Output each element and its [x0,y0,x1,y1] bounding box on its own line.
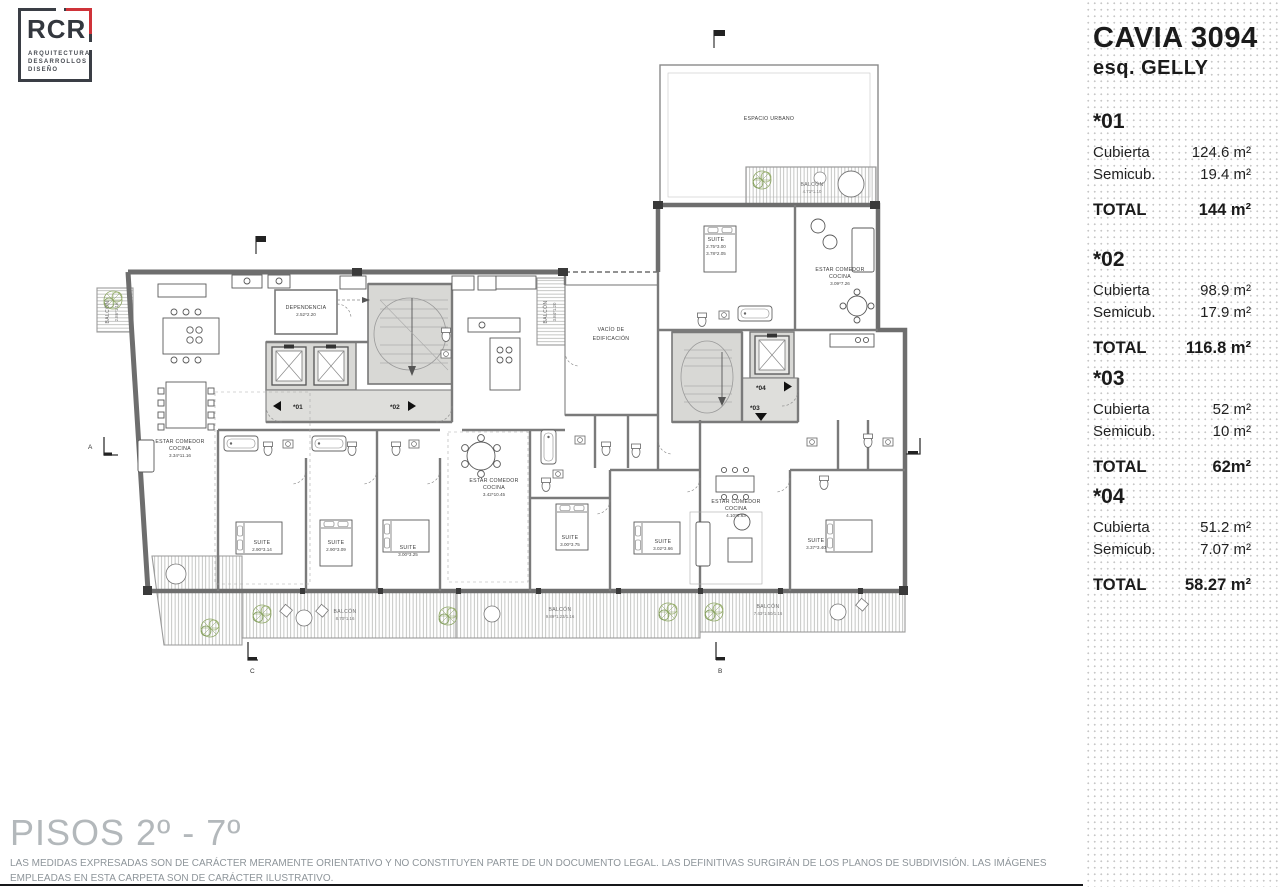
balcony-tr-label: BALCÓN [801,181,824,188]
unit-04-cubierta-label: Cubierta [1093,517,1150,539]
suite-2-l1: SUITE [328,540,345,546]
vacio-edificacion: VACÍO DE EDIFICACIÓN [565,285,658,415]
balcony-b1-dims: 8.70*1.16 [336,616,355,621]
suite-5-dims: 3.02*3.66 [653,546,673,551]
unit-03-cubierta-label: Cubierta [1093,399,1150,421]
floor-range-title: PISOS 2º - 7º [10,812,241,854]
floor-plan: ESPACIO URBANO BALCÓN 4.71*1.10 BALCÓN 8… [0,0,1080,810]
section-marker-c-bottom: C [248,642,258,675]
unit-03-semicub-label: Semicub. [1093,421,1156,443]
estar-right-l2: COCINA [725,506,747,512]
unit-04-total-label: TOTAL [1093,576,1146,595]
dependencia-label: DEPENDENCIA [286,305,327,311]
estar-top-dims: 3.09*7.26 [830,281,850,286]
suite-6-l1: SUITE [808,538,825,544]
suite-3-dims: 3.00*3.25 [398,552,418,557]
section-flag-top-left [256,236,266,254]
section-marker-a-left: A [88,437,118,456]
unit-01-cubierta-value: 124.6 m² [1192,142,1251,164]
unit-03-id: *03 [1093,367,1251,391]
suite-4-dims: 3.00*3.75 [560,542,580,547]
estar-mid-dims: 3.42*10.45 [483,492,506,497]
unit-01-marker: *01 [293,404,303,411]
suite-6-dims: 3.37*3.40 [806,545,826,550]
unit-01-cubierta-label: Cubierta [1093,142,1150,164]
section-b-label: B [718,668,722,675]
estar-mid-l2: COCINA [483,485,505,491]
section-c-label: C [250,668,255,675]
unit-03-marker: *03 [750,405,760,412]
bottom-rule [0,884,1083,886]
elevator-core-right [750,332,794,378]
balcony-mid-label: BALCÓN [542,301,549,324]
balcony-b2-dims: 9.89*1.23/1.16 [546,614,575,619]
project-title: CAVIA 3094 [1093,22,1258,55]
unit-02-semicub-value: 17.9 m² [1200,302,1251,324]
section-flag-top [714,30,725,48]
unit-02-cubierta-label: Cubierta [1093,280,1150,302]
suite-4-l1: SUITE [562,535,579,541]
unit-02-total-value: 116.8 m² [1186,339,1251,358]
balcony-left-dims: 2.86*1.16 [114,302,119,321]
estar-left-l2: COCINA [169,446,191,452]
unit-01-id: *01 [1093,110,1251,134]
unit-03-semicub-value: 10 m² [1213,421,1251,443]
vacio-label-2: EDIFICACIÓN [593,335,630,342]
stair-core-main [368,284,452,384]
estar-right-l1: ESTAR COMEDOR [711,499,760,505]
unit-04-id: *04 [1093,485,1251,509]
balcony-bottom-left [152,556,242,645]
suite-3-l1: SUITE [400,545,417,551]
balcony-tr-dims: 4.71*1.10 [803,189,822,194]
unit-01-total-value: 144 m² [1199,201,1251,220]
unit02-furniture [448,318,528,582]
project-subtitle: esq. GELLY [1093,57,1208,80]
info-sidebar: CAVIA 3094 esq. GELLY *01 Cubierta124.6 … [1085,0,1280,887]
lobby-right: *04 *03 [742,378,798,422]
unit-02-marker: *02 [390,404,400,411]
lobby-left: *01 *02 [266,390,452,422]
unit-03-cubierta-value: 52 m² [1213,399,1251,421]
estar-right-dims: 4.10*6.63 [726,513,746,518]
dependencia-dims: 2.52*2.20 [296,312,316,317]
estar-top-l2: COCINA [829,274,851,280]
estar-left-l1: ESTAR COMEDOR [155,439,204,445]
balcony-bottom-1: BALCÓN 8.70*1.16 [242,592,456,638]
unit-03-total-label: TOTAL [1093,458,1146,477]
balcony-top-right: BALCÓN 4.71*1.10 [746,167,876,205]
unit-02-semicub-label: Semicub. [1093,302,1156,324]
elevator-core-left [266,342,356,390]
section-marker-a-right [906,438,920,454]
balcony-bottom-3: BALCÓN 7.43*1.50/1.16 [700,592,905,632]
unit-block-01: *01 Cubierta124.6 m² Semicub.19.4 m² TOT… [1093,110,1251,220]
section-a-label: A [88,444,93,451]
balcony-bottom-2: BALCÓN 9.89*1.23/1.16 [439,592,700,638]
unit-01-total-label: TOTAL [1093,201,1146,220]
unit-04-cubierta-value: 51.2 m² [1200,517,1251,539]
suite-top-dims: 2.75*3.00 [706,244,726,249]
section-marker-b-bottom: B [716,642,725,675]
estar-mid-l1: ESTAR COMEDOR [469,478,518,484]
brochure-page: RCR ARQUITECTURA DESARROLLOS DISEÑO [0,0,1280,887]
estar-top-l1: ESTAR COMEDOR [815,267,864,273]
estar-left-dims: 3.34*11.16 [169,453,191,458]
unit-02-total-label: TOTAL [1093,339,1146,358]
unit-04-total-value: 58.27 m² [1185,576,1251,595]
unit-02-cubierta-value: 98.9 m² [1200,280,1251,302]
balcony-b2-label: BALCÓN [549,606,572,613]
stair-core-secondary [672,332,742,422]
vacio-label-1: VACÍO DE [598,326,625,333]
legal-disclaimer: LAS MEDIDAS EXPRESADAS SON DE CARÁCTER M… [10,856,1078,886]
balcony-mid-dims: 3.84*1.20 [552,302,557,321]
balcony-mid: BALCÓN 3.84*1.20 [537,278,565,345]
unit-block-03: *03 Cubierta52 m² Semicub.10 m² TOTAL62m… [1093,367,1251,477]
unit-01-semicub-label: Semicub. [1093,164,1156,186]
balcony-b1-label: BALCÓN [334,608,357,615]
unit-04-semicub-value: 7.07 m² [1200,539,1251,561]
suite-top-l1: SUITE [708,237,725,243]
unit-block-02: *02 Cubierta98.9 m² Semicub.17.9 m² TOTA… [1093,248,1251,358]
balcony-b3-dims: 7.43*1.50/1.16 [754,611,783,616]
unit-block-04: *04 Cubierta51.2 m² Semicub.7.07 m² TOTA… [1093,485,1251,595]
suite-top-dims2: 3.78*2.05 [706,251,726,256]
unit-04-marker: *04 [756,385,766,392]
espacio-urbano-label: ESPACIO URBANO [744,116,795,122]
unit-03-total-value: 62m² [1212,458,1251,477]
unit-01-semicub-value: 19.4 m² [1200,164,1251,186]
suite-1-l1: SUITE [254,540,271,546]
unit-04-semicub-label: Semicub. [1093,539,1156,561]
suite-5-l1: SUITE [655,539,672,545]
balcony-b3-label: BALCÓN [757,603,780,610]
suite-1-dims: 2.90*3.14 [252,547,272,552]
balcony-left-label: BALCÓN [104,301,111,324]
suite-2-dims: 2.90*3.09 [326,547,346,552]
dependencia-room: DEPENDENCIA 2.52*2.20 [275,290,370,334]
unit-02-id: *02 [1093,248,1251,272]
